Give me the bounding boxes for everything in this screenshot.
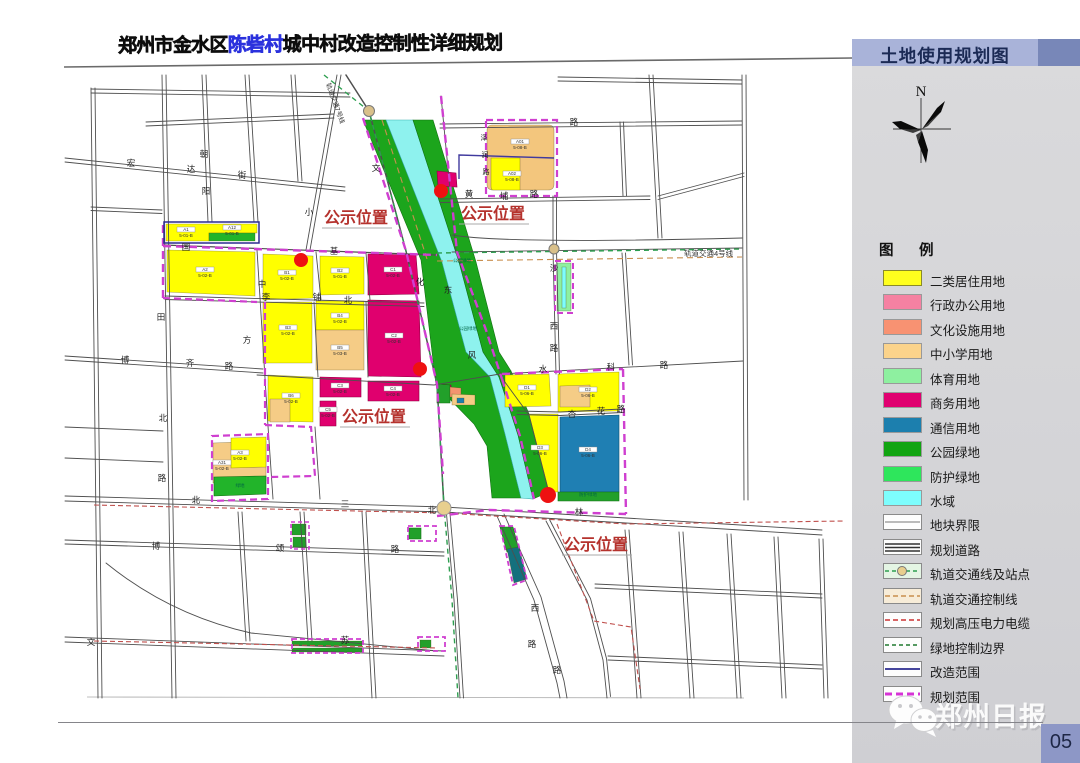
svg-text:B1: B1 bbox=[284, 270, 290, 275]
svg-text:朝: 朝 bbox=[200, 149, 209, 159]
svg-text:西: 西 bbox=[550, 321, 559, 331]
svg-text:D3: D3 bbox=[537, 445, 543, 450]
svg-text:公示位置: 公示位置 bbox=[342, 407, 406, 426]
svg-text:A01: A01 bbox=[516, 139, 525, 144]
svg-text:文: 文 bbox=[372, 163, 381, 173]
svg-text:中: 中 bbox=[258, 279, 267, 289]
svg-text:水: 水 bbox=[539, 364, 548, 374]
svg-text:泽: 泽 bbox=[481, 134, 488, 142]
svg-text:B3: B3 bbox=[285, 325, 291, 330]
svg-text:C3: C3 bbox=[337, 383, 343, 388]
svg-text:沙: 沙 bbox=[550, 263, 559, 273]
svg-text:5-06-B: 5-06-B bbox=[581, 453, 595, 458]
svg-text:N: N bbox=[916, 84, 927, 100]
svg-text:路: 路 bbox=[550, 343, 559, 353]
svg-text:基: 基 bbox=[330, 246, 339, 256]
svg-text:B4: B4 bbox=[337, 313, 343, 318]
svg-text:颂: 颂 bbox=[276, 543, 285, 553]
svg-text:5-02-B: 5-02-B bbox=[198, 273, 212, 278]
svg-text:风: 风 bbox=[468, 350, 477, 360]
svg-text:林: 林 bbox=[575, 507, 584, 517]
svg-text:5-02-B: 5-02-B bbox=[387, 339, 401, 344]
svg-text:绿地: 绿地 bbox=[236, 482, 245, 488]
svg-text:宏: 宏 bbox=[127, 158, 136, 168]
svg-text:苏: 苏 bbox=[341, 635, 350, 645]
svg-text:5-01-B: 5-01-B bbox=[333, 274, 347, 279]
svg-text:C1: C1 bbox=[390, 267, 396, 272]
svg-text:北: 北 bbox=[428, 505, 437, 515]
svg-text:5-02-B: 5-02-B bbox=[386, 273, 400, 278]
svg-text:5-02-B: 5-02-B bbox=[281, 331, 295, 336]
svg-text:5-02-B: 5-02-B bbox=[333, 389, 347, 394]
svg-text:5-01-B: 5-01-B bbox=[225, 231, 239, 236]
svg-text:A02: A02 bbox=[508, 171, 517, 176]
svg-text:C4: C4 bbox=[390, 386, 396, 391]
svg-text:5-02-B: 5-02-B bbox=[215, 466, 229, 471]
svg-text:方: 方 bbox=[243, 335, 252, 345]
svg-text:达: 达 bbox=[187, 164, 196, 174]
svg-text:5-02-B: 5-02-B bbox=[233, 456, 247, 461]
svg-text:科: 科 bbox=[607, 362, 616, 372]
svg-text:D1: D1 bbox=[524, 385, 530, 390]
svg-text:李: 李 bbox=[262, 292, 271, 302]
svg-text:花: 花 bbox=[597, 406, 606, 416]
svg-text:路: 路 bbox=[660, 360, 669, 370]
svg-text:北: 北 bbox=[159, 413, 168, 423]
svg-text:5-02-B: 5-02-B bbox=[321, 413, 335, 418]
svg-text:路: 路 bbox=[553, 665, 562, 675]
svg-text:埔: 埔 bbox=[500, 191, 509, 201]
svg-text:路: 路 bbox=[570, 117, 579, 127]
svg-text:公示位置: 公示位置 bbox=[461, 204, 525, 223]
svg-text:C5: C5 bbox=[325, 407, 331, 412]
svg-text:B5: B5 bbox=[337, 345, 343, 350]
svg-text:铺: 铺 bbox=[313, 292, 322, 302]
svg-text:5-06-B: 5-06-B bbox=[581, 393, 595, 398]
svg-text:路: 路 bbox=[225, 361, 234, 371]
svg-text:杏: 杏 bbox=[568, 409, 577, 419]
svg-text:田: 田 bbox=[157, 312, 166, 322]
svg-text:阳: 阳 bbox=[202, 186, 211, 196]
svg-text:路: 路 bbox=[391, 544, 400, 554]
svg-text:C2: C2 bbox=[391, 333, 397, 338]
svg-text:A2: A2 bbox=[202, 267, 208, 272]
svg-text:A31: A31 bbox=[218, 460, 227, 465]
svg-text:西: 西 bbox=[531, 603, 540, 613]
svg-text:国: 国 bbox=[182, 242, 191, 252]
svg-text:三: 三 bbox=[341, 499, 350, 509]
svg-text:路: 路 bbox=[617, 404, 626, 414]
svg-text:路: 路 bbox=[530, 189, 539, 199]
svg-text:5-06-B: 5-06-B bbox=[533, 451, 547, 456]
svg-text:黄: 黄 bbox=[465, 189, 474, 199]
svg-text:轨道交通4号线: 轨道交通4号线 bbox=[684, 248, 734, 258]
svg-text:D2: D2 bbox=[585, 387, 591, 392]
svg-text:D4: D4 bbox=[585, 447, 591, 452]
svg-text:润: 润 bbox=[482, 150, 489, 159]
svg-text:齐: 齐 bbox=[186, 358, 195, 368]
svg-text:化: 化 bbox=[416, 277, 425, 287]
svg-text:郑州日报: 郑州日报 bbox=[935, 702, 1047, 732]
svg-text:路: 路 bbox=[483, 167, 490, 176]
svg-text:5-08-B: 5-08-B bbox=[513, 145, 527, 150]
svg-text:5-06-B: 5-06-B bbox=[520, 391, 534, 396]
svg-text:5-03-B: 5-03-B bbox=[333, 351, 347, 356]
svg-text:5-02-B: 5-02-B bbox=[280, 276, 294, 281]
svg-text:文: 文 bbox=[87, 637, 96, 647]
svg-text:5-02-B: 5-02-B bbox=[284, 399, 298, 404]
svg-text:A3: A3 bbox=[237, 450, 243, 455]
svg-text:B2: B2 bbox=[337, 268, 343, 273]
svg-text:A12: A12 bbox=[228, 225, 237, 230]
svg-text:公示位置: 公示位置 bbox=[324, 208, 388, 227]
svg-text:防护绿地: 防护绿地 bbox=[579, 491, 597, 498]
svg-text:5-01-B: 5-01-B bbox=[179, 233, 193, 238]
svg-text:博: 博 bbox=[121, 355, 130, 365]
svg-text:北: 北 bbox=[344, 295, 353, 305]
svg-text:北: 北 bbox=[192, 495, 201, 505]
svg-text:小: 小 bbox=[305, 207, 314, 217]
svg-text:公园绿地: 公园绿地 bbox=[453, 257, 471, 264]
svg-text:路: 路 bbox=[158, 473, 167, 483]
svg-text:A1: A1 bbox=[183, 227, 189, 232]
svg-text:5-02-B: 5-02-B bbox=[386, 392, 400, 397]
svg-text:路: 路 bbox=[528, 639, 537, 649]
svg-text:东: 东 bbox=[444, 285, 453, 295]
svg-text:5-02-B: 5-02-B bbox=[333, 319, 347, 324]
svg-text:B6: B6 bbox=[288, 393, 294, 398]
svg-text:公园绿地: 公园绿地 bbox=[459, 325, 477, 332]
svg-text:街: 街 bbox=[238, 170, 247, 180]
svg-text:5-08-B: 5-08-B bbox=[505, 177, 519, 182]
svg-text:博: 博 bbox=[152, 541, 161, 551]
svg-text:公示位置: 公示位置 bbox=[564, 535, 628, 554]
